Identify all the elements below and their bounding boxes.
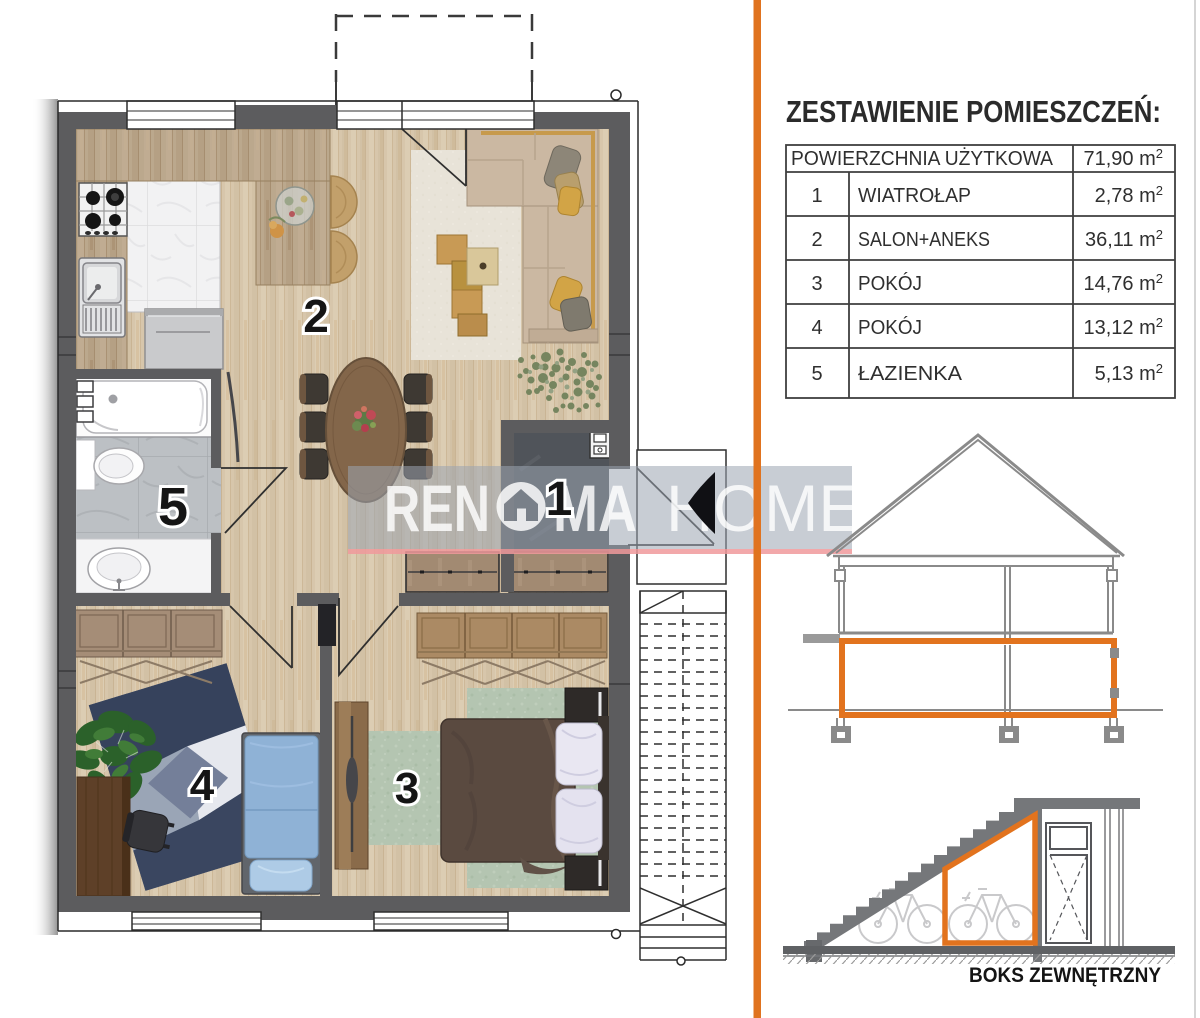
svg-text:5,13 m2: 5,13 m2 <box>1095 361 1163 385</box>
svg-text:3: 3 <box>395 764 419 813</box>
svg-text:POWIERZCHNIA UŻYTKOWA: POWIERZCHNIA UŻYTKOWA <box>791 147 1054 170</box>
svg-text:ŁAZIENKA: ŁAZIENKA <box>858 363 963 385</box>
svg-text:71,90 m2: 71,90 m2 <box>1084 146 1164 170</box>
svg-text:SALON+ANEKS: SALON+ANEKS <box>858 229 990 251</box>
svg-text:3: 3 <box>811 273 822 295</box>
svg-text:14,76 m2: 14,76 m2 <box>1084 271 1164 295</box>
svg-text:1: 1 <box>546 473 573 526</box>
svg-text:1: 1 <box>811 185 822 207</box>
svg-text:4: 4 <box>190 761 215 810</box>
svg-text:REN: REN <box>384 471 490 545</box>
svg-text:WIATROŁAP: WIATROŁAP <box>858 185 971 207</box>
svg-text:2,78 m2: 2,78 m2 <box>1095 183 1163 207</box>
svg-text:POKÓJ: POKÓJ <box>858 316 922 339</box>
svg-text:5: 5 <box>811 363 822 385</box>
svg-text:13,12 m2: 13,12 m2 <box>1084 315 1164 339</box>
svg-text:2: 2 <box>303 290 329 342</box>
svg-text:ZESTAWIENIE POMIESZCZEŃ:: ZESTAWIENIE POMIESZCZEŃ: <box>786 94 1161 129</box>
svg-text:36,11 m2: 36,11 m2 <box>1085 227 1163 251</box>
svg-text:BOKS ZEWNĘTRZNY: BOKS ZEWNĘTRZNY <box>969 964 1161 987</box>
svg-text:4: 4 <box>811 317 822 339</box>
svg-text:2: 2 <box>811 229 822 251</box>
svg-text:5: 5 <box>158 477 188 537</box>
svg-text:POKÓJ: POKÓJ <box>858 272 922 295</box>
